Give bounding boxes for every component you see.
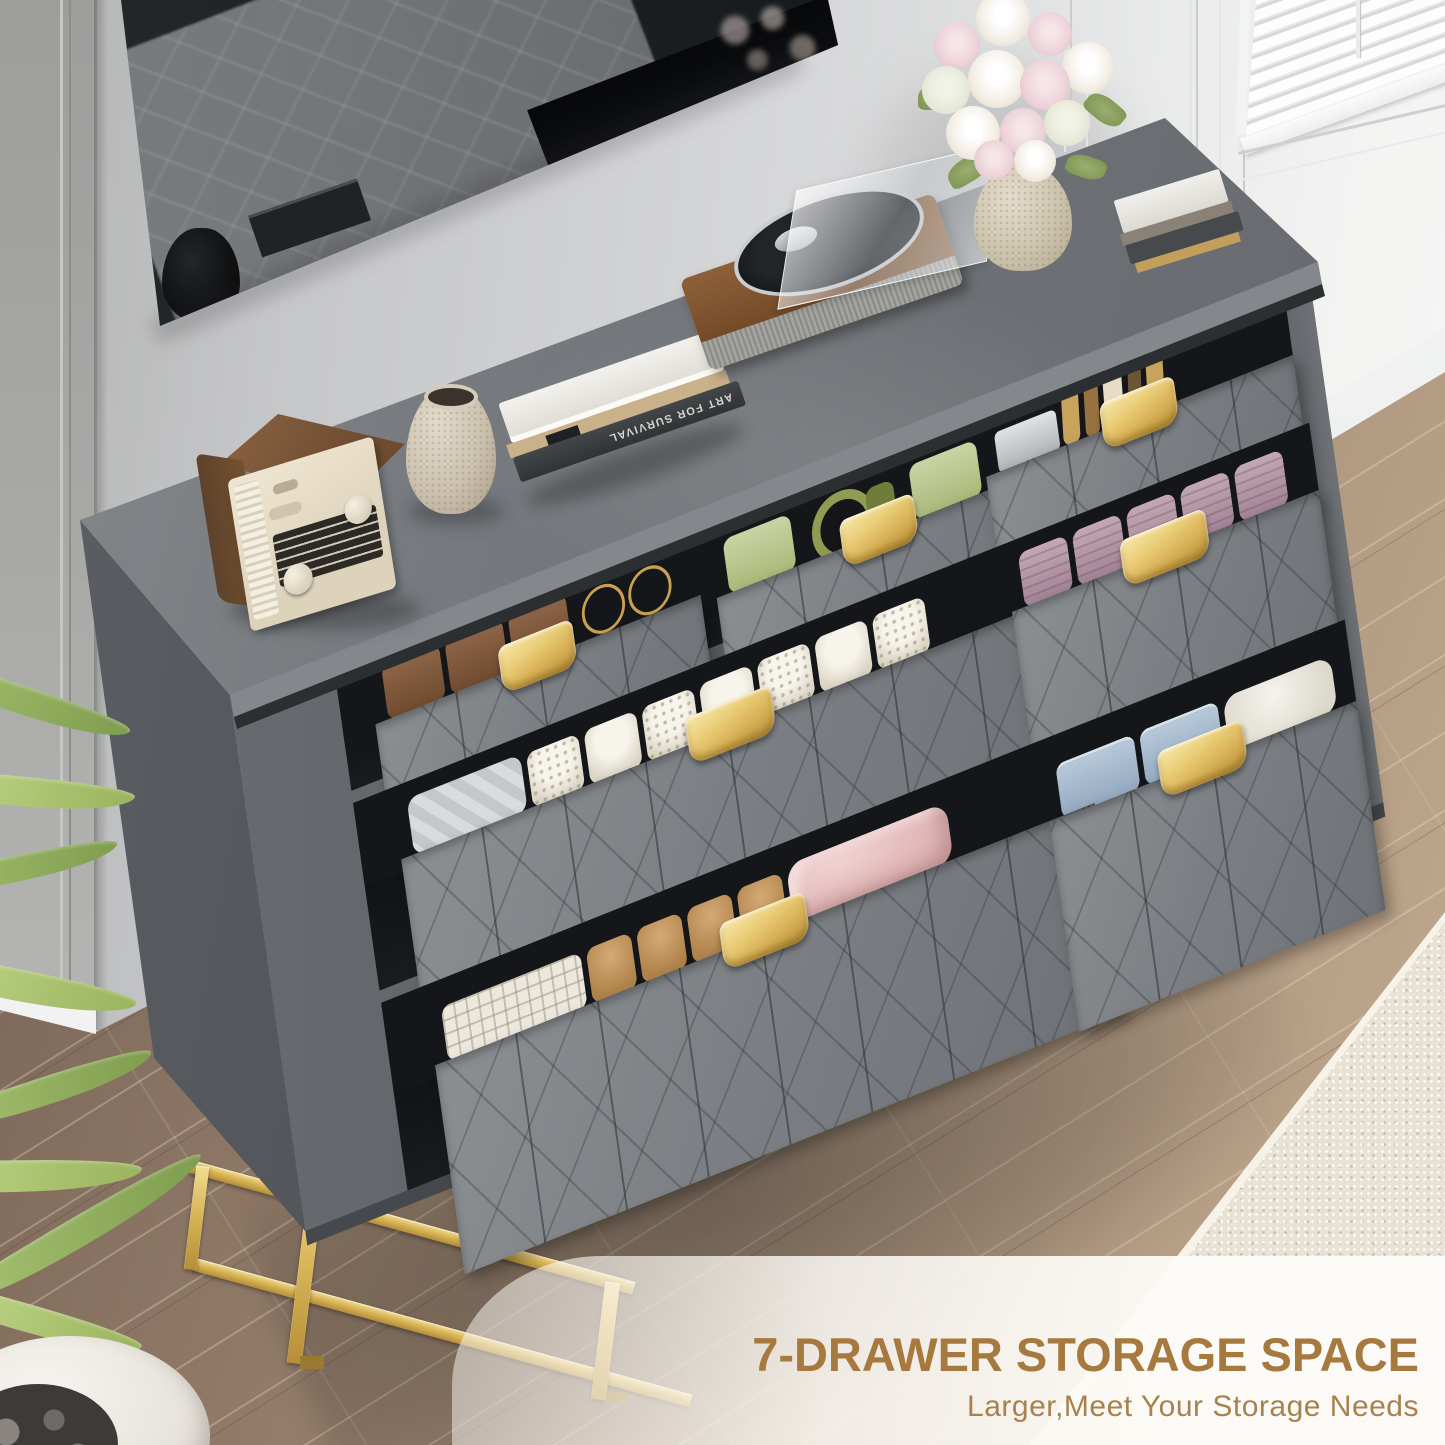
caption-title: 7-DRAWER STORAGE SPACE [752,1331,1419,1378]
pink-rose [974,140,1014,180]
retro-radio [202,414,417,624]
white-lily [976,0,1030,46]
caption-subtitle: Larger,Meet Your Storage Needs [752,1390,1419,1423]
radio-button [268,500,302,522]
flower-vase [974,166,1072,271]
product-photo-7-drawer-dresser: ART FOR SURVIVAL [0,0,1445,1445]
white-lily [968,50,1026,108]
marketing-caption: 7-DRAWER STORAGE SPACE Larger,Meet Your … [752,1331,1419,1423]
leaf [1063,150,1108,184]
pink-rose [1028,12,1072,56]
gold-base-foot [300,1356,324,1369]
wainscot-stile [1219,0,1221,178]
blinds-tilt-wand [1356,0,1360,58]
planter-pebbles [0,1384,118,1445]
white-lily [1014,140,1056,182]
flower-bouquet [916,0,1131,288]
radio-button [272,478,298,496]
hydrangea [1044,100,1090,146]
